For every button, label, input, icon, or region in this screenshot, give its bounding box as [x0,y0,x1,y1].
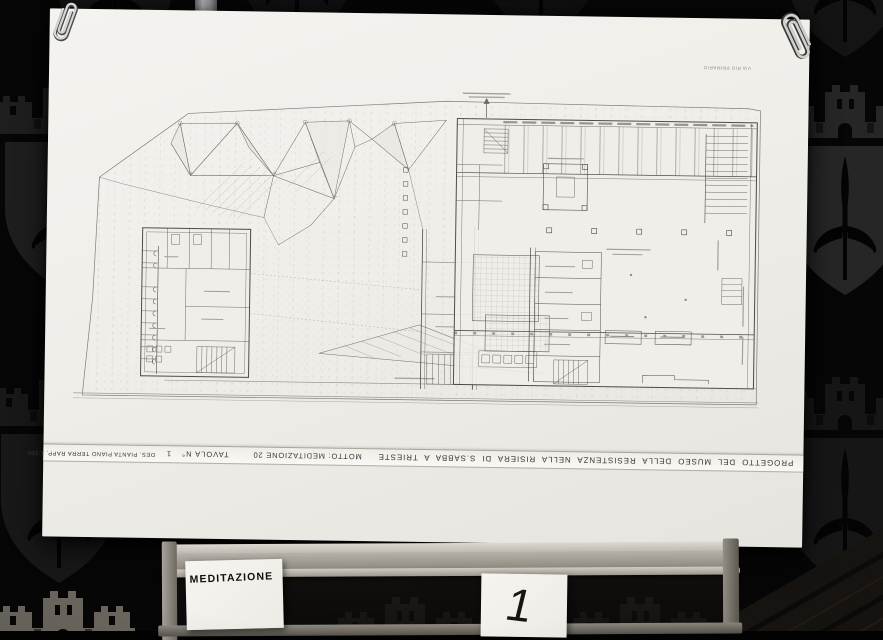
number-card-digit: 1 [500,575,539,635]
motto-label: MOTTO: MEDITAZIONE 20 [253,451,362,462]
street-label: VIA RIO PRIMARIO [695,62,759,73]
photo-stage: VIA RIO PRIMARIO PROGETTO DEL MUSEO DELL… [0,0,883,640]
number-card: 1 [481,573,568,637]
left-building [141,228,251,378]
drawing-label: DES. PIANTA PIANO TERRA RAPP. 1:100 [27,449,155,457]
project-title: PROGETTO DEL MUSEO DELLA RESISTENZA NELL… [378,453,794,468]
tavola-label: TAVOLA N° [181,450,229,460]
tray-right-cap [723,538,739,630]
motto-card: MEDITAZIONE [185,559,284,630]
presentation-board: VIA RIO PRIMARIO PROGETTO DEL MUSEO DELL… [42,8,810,547]
main-building [453,118,757,388]
motto-card-text: MEDITAZIONE [189,570,273,585]
tavola-number: 1 [167,450,171,459]
